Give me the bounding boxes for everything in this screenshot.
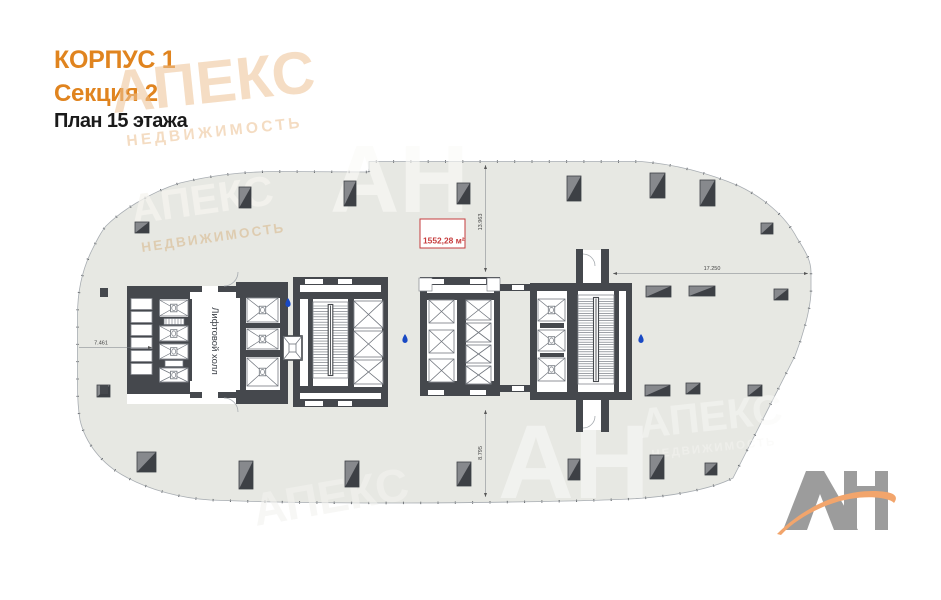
svg-text:1552,28 м²: 1552,28 м² — [423, 236, 465, 246]
svg-text:13.963: 13.963 — [478, 214, 484, 231]
svg-text:8.795: 8.795 — [478, 446, 484, 460]
svg-text:7.461: 7.461 — [94, 341, 108, 347]
svg-text:АН: АН — [330, 126, 469, 233]
svg-text:АПЕКС: АПЕКС — [107, 38, 318, 126]
svg-text:17.250: 17.250 — [704, 266, 721, 272]
svg-text:Лифтовой холл: Лифтовой холл — [209, 307, 220, 375]
